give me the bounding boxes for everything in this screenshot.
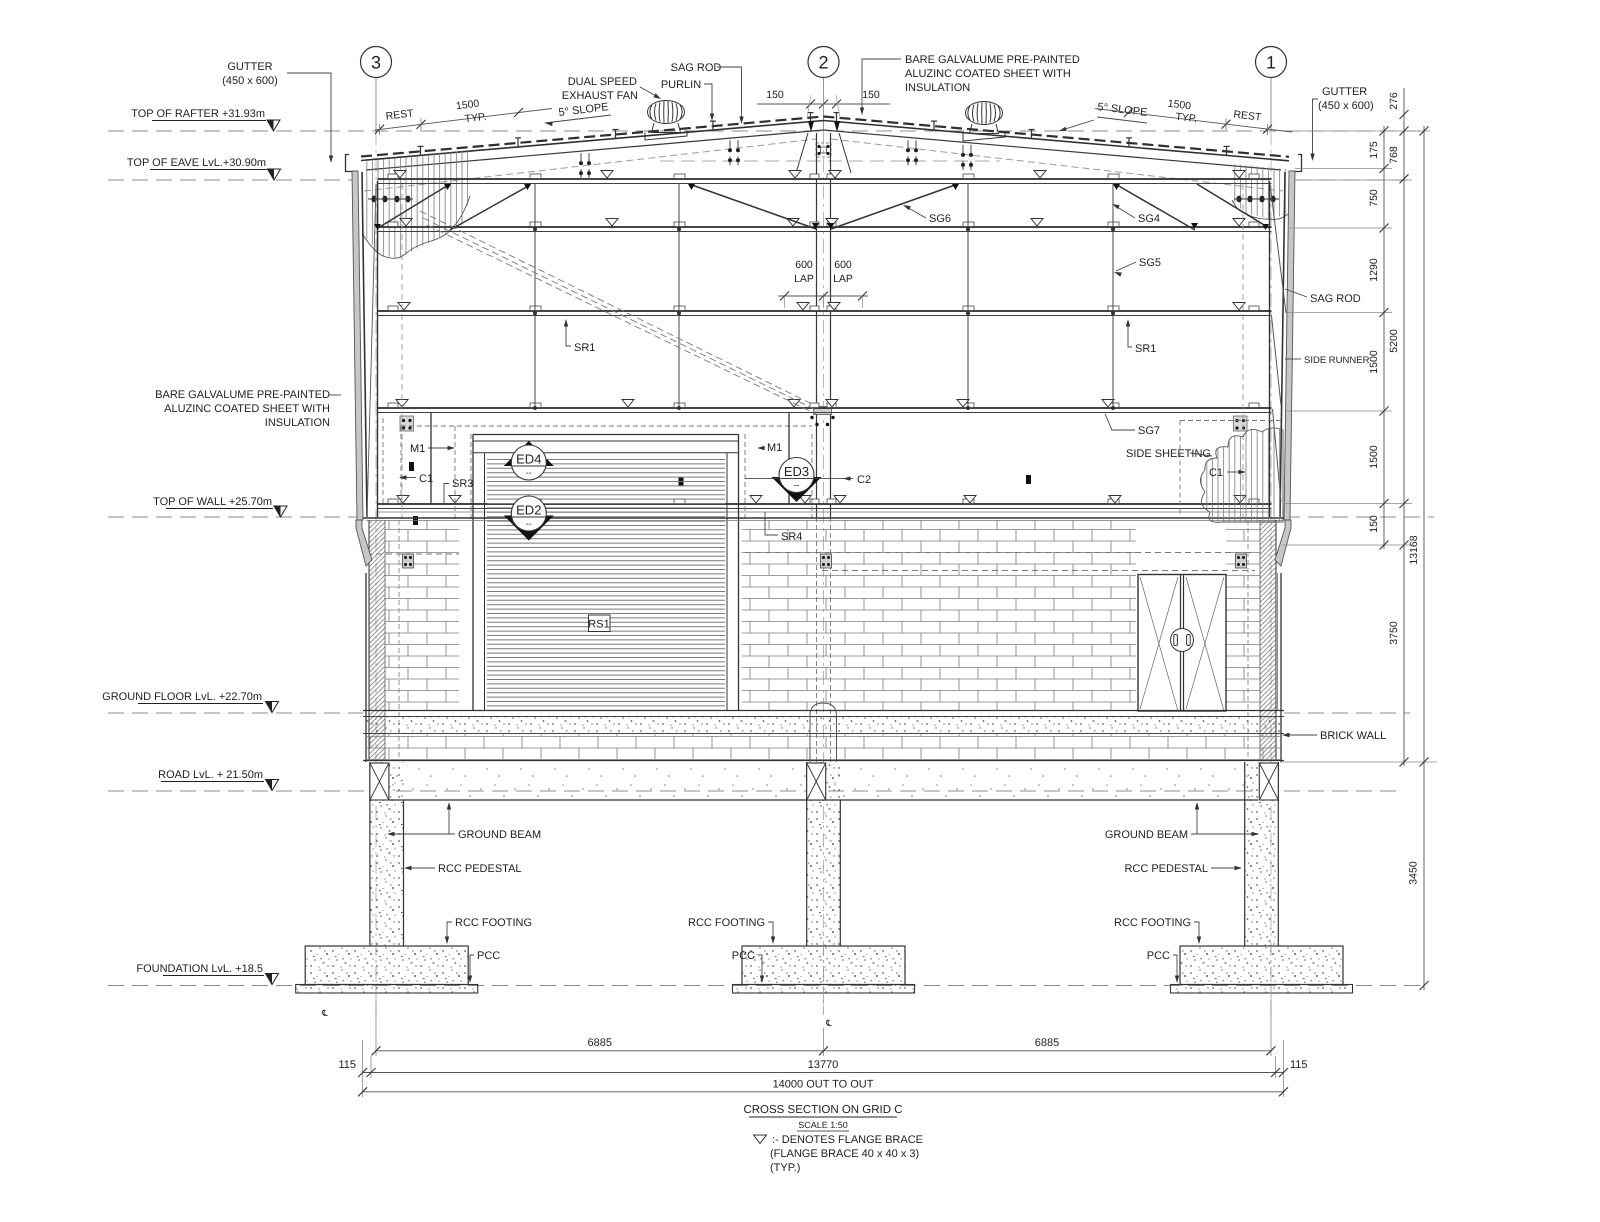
svg-text:ED3: ED3 <box>784 464 809 479</box>
svg-text:13770: 13770 <box>808 1059 839 1071</box>
svg-text:RS1: RS1 <box>588 619 609 631</box>
svg-text:C1: C1 <box>419 473 433 485</box>
svg-text:TOP OF RAFTER +31.93m: TOP OF RAFTER +31.93m <box>131 108 265 120</box>
svg-text:M1: M1 <box>410 443 425 455</box>
svg-text:GROUND BEAM: GROUND BEAM <box>458 829 541 841</box>
svg-text:RCC PEDESTAL: RCC PEDESTAL <box>438 863 522 875</box>
svg-text:(TYP.): (TYP.) <box>770 1162 800 1174</box>
svg-text:PCC: PCC <box>1147 950 1170 962</box>
svg-text::- DENOTES FLANGE BRACE: :- DENOTES FLANGE BRACE <box>772 1134 923 1146</box>
svg-text:SG5: SG5 <box>1139 257 1161 269</box>
svg-text:CROSS SECTION ON GRID C: CROSS SECTION ON GRID C <box>743 1104 902 1116</box>
svg-text:SG4: SG4 <box>1138 213 1160 225</box>
svg-text:276: 276 <box>1388 92 1400 110</box>
svg-text:DUAL SPEED: DUAL SPEED <box>568 76 637 88</box>
svg-text:115: 115 <box>338 1059 356 1071</box>
svg-text:GUTTER: GUTTER <box>227 61 272 73</box>
svg-text:150: 150 <box>766 89 784 101</box>
svg-text:PURLIN: PURLIN <box>661 79 701 91</box>
svg-text:EXHAUST FAN: EXHAUST FAN <box>562 90 638 102</box>
svg-text:RCC FOOTING: RCC FOOTING <box>1114 917 1191 929</box>
svg-text:115: 115 <box>1290 1059 1308 1071</box>
svg-text:M1: M1 <box>767 442 782 454</box>
svg-text:GROUND BEAM: GROUND BEAM <box>1105 829 1188 841</box>
svg-text:1: 1 <box>1266 53 1276 73</box>
svg-text:150: 150 <box>1368 515 1380 533</box>
svg-text:BRICK WALL: BRICK WALL <box>1320 730 1386 742</box>
svg-text:1290: 1290 <box>1368 258 1380 282</box>
svg-text:SR1: SR1 <box>574 342 595 354</box>
svg-text:6885: 6885 <box>588 1037 612 1049</box>
svg-text:14000 OUT TO OUT: 14000 OUT TO OUT <box>773 1079 874 1091</box>
svg-text:SR3: SR3 <box>452 478 473 490</box>
svg-text:600: 600 <box>795 259 813 271</box>
svg-text:BARE GALVALUME PRE-PAINTED: BARE GALVALUME PRE-PAINTED <box>905 54 1080 66</box>
svg-text:SAG ROD: SAG ROD <box>671 62 722 74</box>
svg-text:--: -- <box>794 480 800 490</box>
svg-text:GROUND FLOOR LvL. +22.70m: GROUND FLOOR LvL. +22.70m <box>102 691 262 703</box>
svg-text:175: 175 <box>1368 141 1380 159</box>
svg-text:RCC PEDESTAL: RCC PEDESTAL <box>1124 863 1208 875</box>
svg-text:FOUNDATION LvL. +18.5: FOUNDATION LvL. +18.5 <box>136 963 263 975</box>
svg-text:(450 x 600): (450 x 600) <box>222 75 278 87</box>
svg-text:150: 150 <box>862 89 880 101</box>
svg-text:768: 768 <box>1388 146 1400 164</box>
svg-text:INSULATION: INSULATION <box>905 82 970 94</box>
svg-text:SR1: SR1 <box>1135 343 1156 355</box>
svg-text:C1: C1 <box>1209 467 1223 479</box>
svg-text:ALUZINC COATED SHEET WITH: ALUZINC COATED SHEET WITH <box>164 403 330 415</box>
svg-text:SG7: SG7 <box>1138 425 1160 437</box>
svg-text:(450 x 600): (450 x 600) <box>1318 100 1374 112</box>
svg-text:ED2: ED2 <box>516 503 541 518</box>
svg-text:--: -- <box>526 519 532 529</box>
svg-text:RCC FOOTING: RCC FOOTING <box>455 917 532 929</box>
svg-text:6885: 6885 <box>1035 1037 1059 1049</box>
svg-text:TOP OF EAVE LvL.+30.90m: TOP OF EAVE LvL.+30.90m <box>127 157 266 169</box>
svg-text:3450: 3450 <box>1408 861 1420 885</box>
svg-text:ALUZINC COATED SHEET WITH: ALUZINC COATED SHEET WITH <box>905 68 1071 80</box>
svg-text:TOP OF WALL +25.70m: TOP OF WALL +25.70m <box>153 496 272 508</box>
svg-text:1500: 1500 <box>1368 350 1380 374</box>
svg-text:5200: 5200 <box>1388 329 1400 353</box>
svg-text:1500: 1500 <box>1368 445 1380 469</box>
svg-text:GUTTER: GUTTER <box>1322 86 1367 98</box>
svg-text:SAG ROD: SAG ROD <box>1310 293 1361 305</box>
svg-text:2: 2 <box>818 53 828 73</box>
svg-text:600: 600 <box>834 259 852 271</box>
svg-text:C2: C2 <box>857 474 871 486</box>
svg-text:PCC: PCC <box>477 950 500 962</box>
svg-text:SR4: SR4 <box>781 531 802 543</box>
svg-text:750: 750 <box>1368 189 1380 207</box>
svg-text:PCC: PCC <box>732 950 755 962</box>
svg-text:SG6: SG6 <box>929 213 951 225</box>
svg-text:SCALE 1:50: SCALE 1:50 <box>798 1120 848 1130</box>
svg-text:℄: ℄ <box>321 1008 328 1018</box>
svg-text:3750: 3750 <box>1388 621 1400 645</box>
svg-text:BARE GALVALUME PRE-PAINTED: BARE GALVALUME PRE-PAINTED <box>155 389 330 401</box>
svg-text:RCC FOOTING: RCC FOOTING <box>688 917 765 929</box>
svg-text:(FLANGE BRACE 40 x 40 x 3): (FLANGE BRACE 40 x 40 x 3) <box>770 1148 919 1160</box>
svg-text:ED4: ED4 <box>516 452 541 467</box>
svg-text:3: 3 <box>371 53 381 73</box>
svg-text:LAP: LAP <box>833 273 853 285</box>
svg-text:INSULATION: INSULATION <box>265 417 330 429</box>
svg-text:--: -- <box>526 468 532 478</box>
svg-text:ROAD LvL. + 21.50m: ROAD LvL. + 21.50m <box>158 769 263 781</box>
svg-text:LAP: LAP <box>794 273 814 285</box>
svg-text:℄: ℄ <box>825 1018 832 1028</box>
svg-text:SIDE RUNNER: SIDE RUNNER <box>1304 355 1370 366</box>
svg-text:13168: 13168 <box>1408 535 1420 564</box>
